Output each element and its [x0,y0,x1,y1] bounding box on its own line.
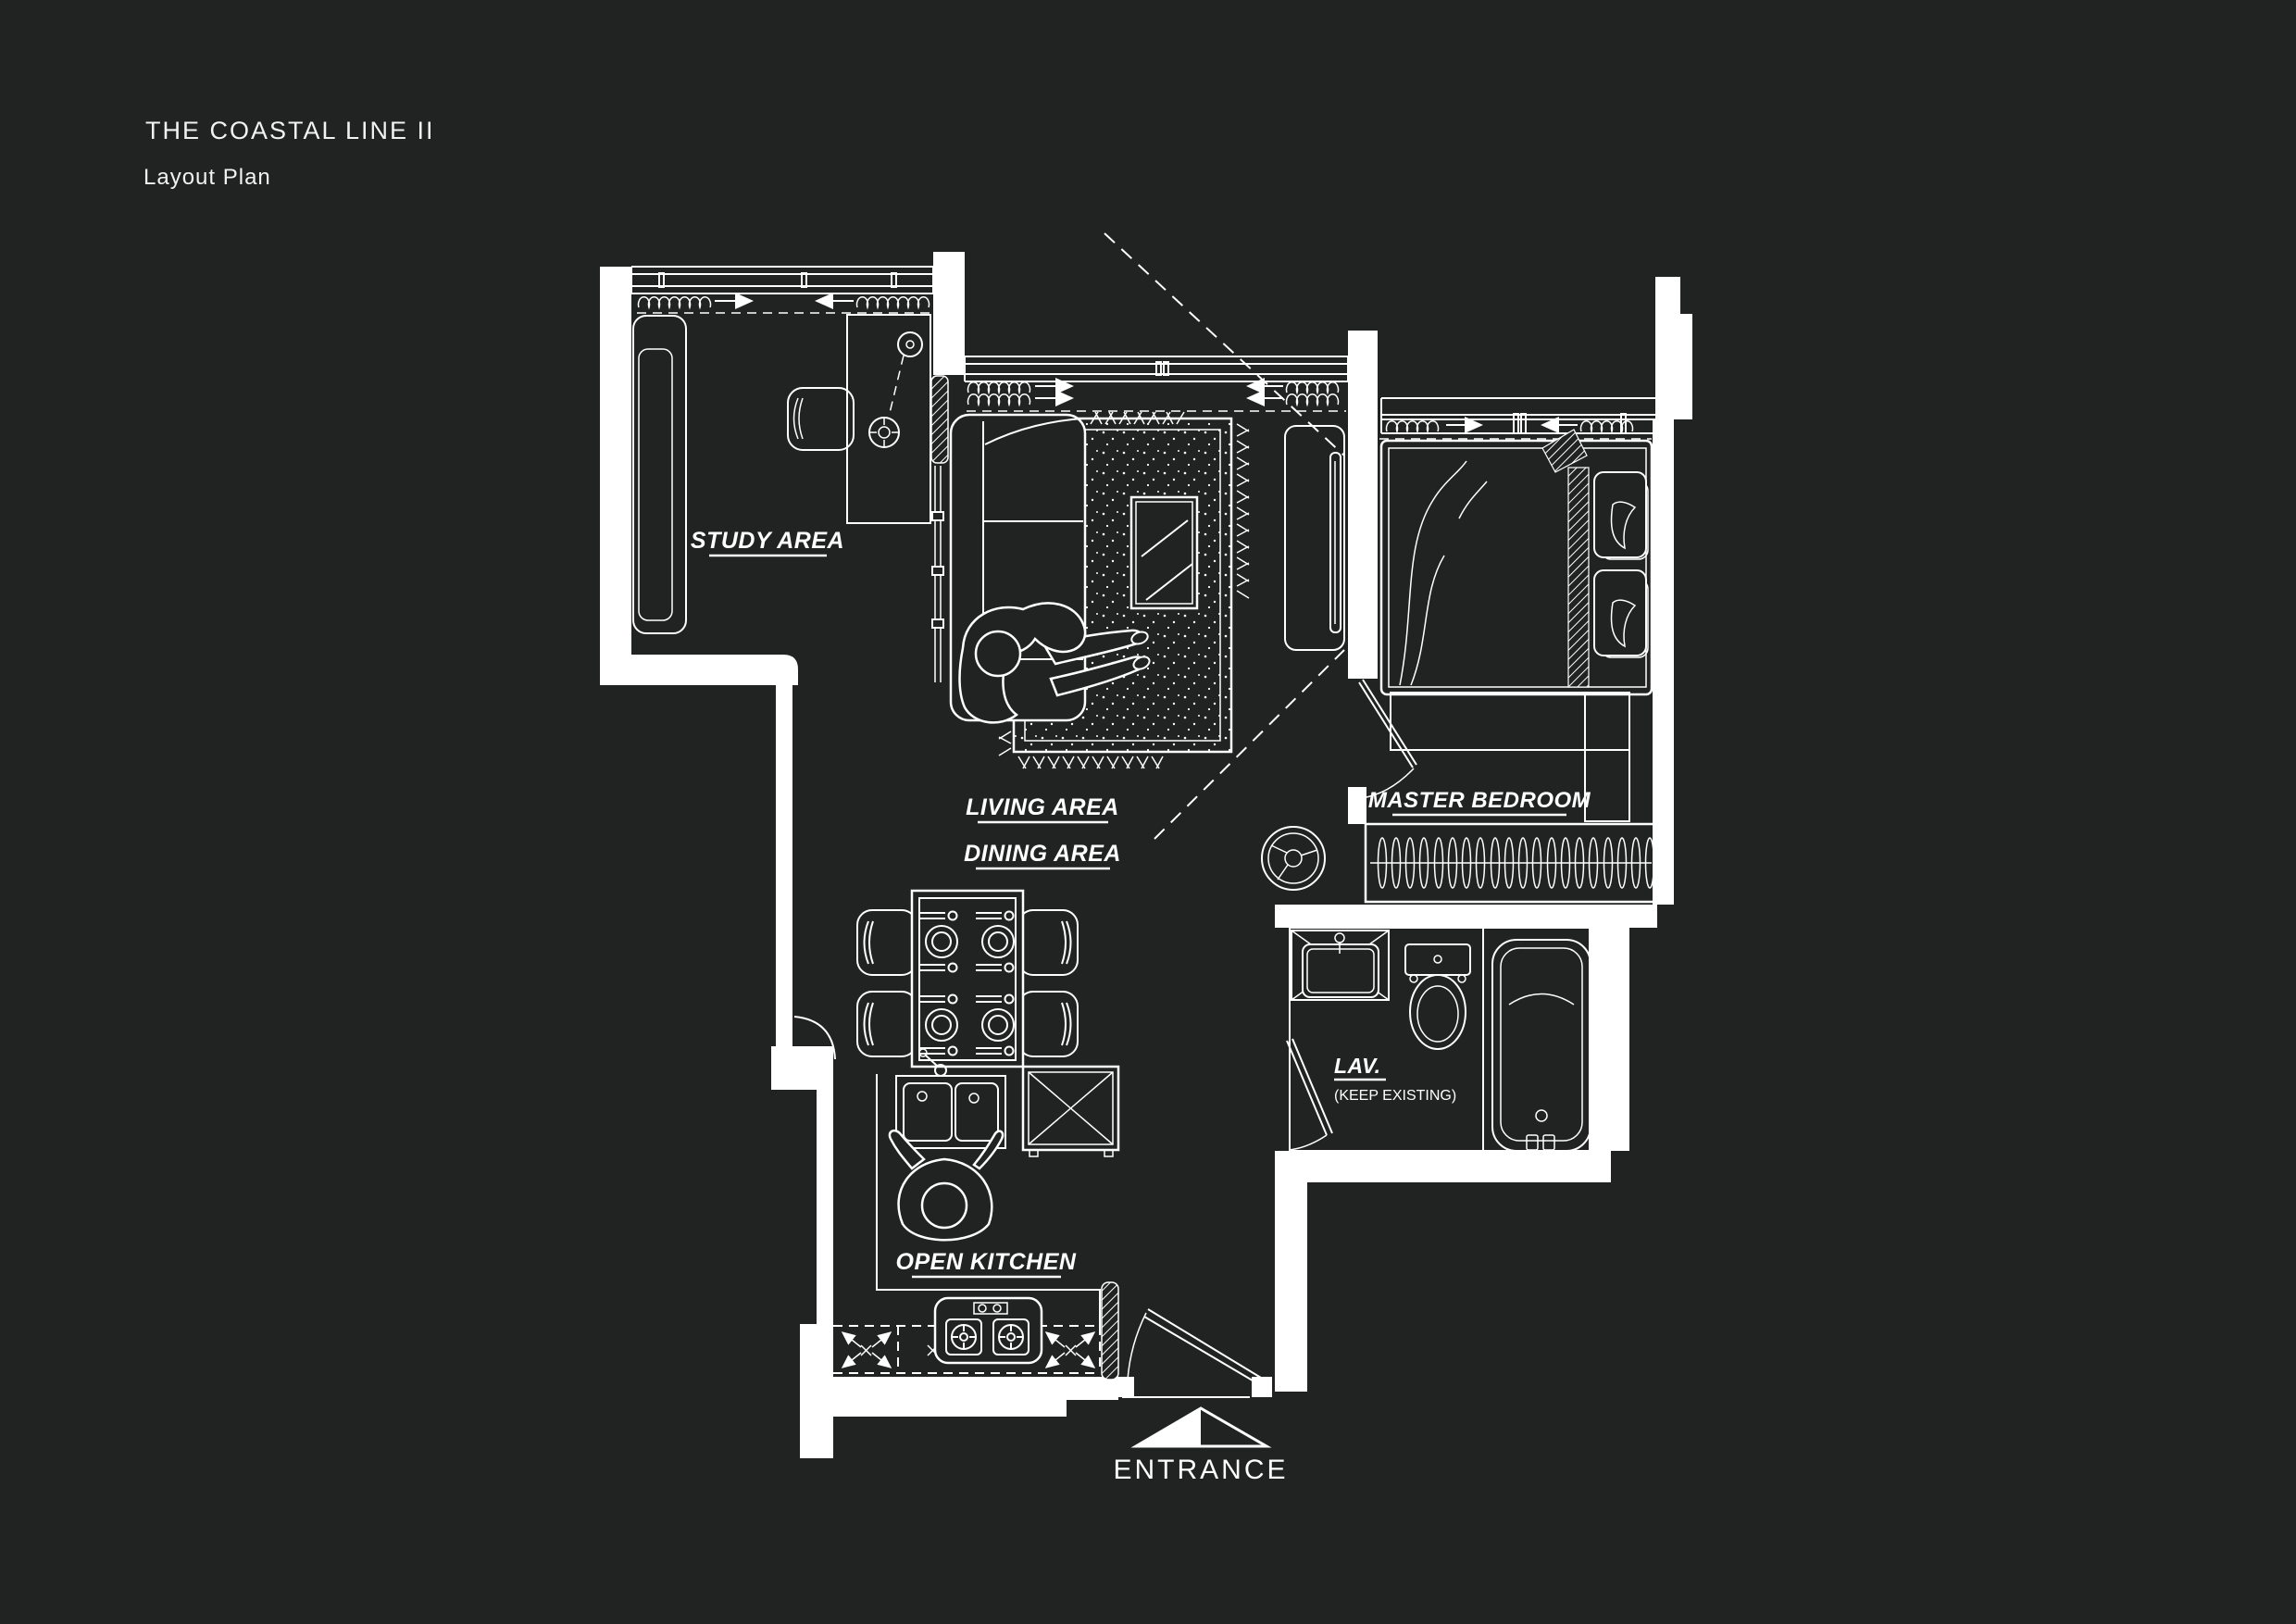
wall-ne-step-a [1655,277,1680,314]
dining-area-label: DINING AREA [964,841,1121,867]
pillow-icon [1594,570,1648,657]
wall-study-left [600,267,631,685]
study-area-label: STUDY AREA [691,528,844,554]
wall-kitchen-sw [800,1324,833,1458]
pillow-icon [1594,472,1648,559]
ceiling-fan-icon [1262,827,1325,890]
desk-chair-icon [788,388,854,450]
throw-blanket-icon [1568,468,1589,687]
toilet-icon [1405,944,1470,1049]
wall-master-left-stub [1348,787,1366,824]
desk-icon [847,315,930,523]
dining-chair [1018,910,1078,975]
entrance [1122,1309,1267,1446]
wall-master-left [1348,331,1378,679]
dining-table-icon [912,891,1023,1067]
wall-bath-right [1590,928,1629,1151]
bathroom [1287,931,1591,1158]
wardrobe-hanger-rail-icon [1366,824,1655,902]
entrance-door-icon [1122,1309,1261,1397]
study-curtain-icon [637,297,931,313]
wall-kitchen-bottom [833,1377,1118,1400]
study-wardrobe-icon [633,316,686,633]
coffee-table-icon [1131,497,1197,608]
partition-tick-line [932,466,943,682]
master-door-icon [1359,680,1416,798]
lav-note: (KEEP EXISTING) [1334,1088,1456,1104]
study-window-icon [631,267,933,294]
wall-hall-left [776,681,792,1046]
master-curtain-icon [1379,421,1652,439]
wall-bath-bottom [1275,1151,1611,1182]
entrance-label: ENTRANCE [1113,1455,1288,1485]
dining-chair [857,910,917,975]
bed-icon [1381,430,1652,694]
living-curtain-icon [967,382,1346,411]
tv-console-icon [1285,426,1344,650]
wall-window-pillar [933,252,965,375]
floor-plan: STUDY AREA LIVING AREA DINING AREA MASTE… [0,0,2296,1624]
bathtub-icon [1492,940,1591,1158]
desk-lamp-icon [869,332,922,447]
bath-door-icon [1287,1039,1332,1150]
master-bedroom-label: MASTER BEDROOM [1368,788,1591,813]
open-kitchen-label: OPEN KITCHEN [896,1249,1077,1275]
living-room [931,233,1344,839]
column-hatch-living [931,376,948,463]
bath-sink-icon [1291,931,1389,1000]
living-area-label: LIVING AREA [966,794,1119,820]
wall-kitchen-left [817,1090,833,1324]
dining-area [857,891,1078,1067]
plan-subtitle: Layout Plan [143,165,271,190]
wall-corridor-right [1275,1182,1307,1392]
stove-icon [935,1298,1042,1363]
column-hatch-entrance [1102,1282,1118,1380]
wall-study-bottom [600,655,798,685]
lav-label: LAV. [1334,1054,1381,1078]
door-jamb-right [1252,1377,1272,1397]
wall-bath-top [1275,905,1657,928]
living-window-icon [965,356,1348,381]
cabinet-icon [1023,1067,1118,1156]
door-jamb-left [1116,1377,1134,1397]
wall-kitchen-pillar [771,1046,833,1090]
dining-chair [1018,992,1078,1056]
wall-kitchen-bottom-step [833,1400,1067,1417]
plan-title: THE COASTAL LINE II [145,117,435,144]
master-window-icon [1381,398,1655,433]
dining-chair [857,992,917,1056]
entrance-arrow-icon [1136,1408,1267,1446]
floor-plan-page: STUDY AREA LIVING AREA DINING AREA MASTE… [0,0,2296,1624]
wall-ne-step-b [1655,314,1692,419]
title-block: THE COASTAL LINE II Layout Plan [143,117,435,190]
